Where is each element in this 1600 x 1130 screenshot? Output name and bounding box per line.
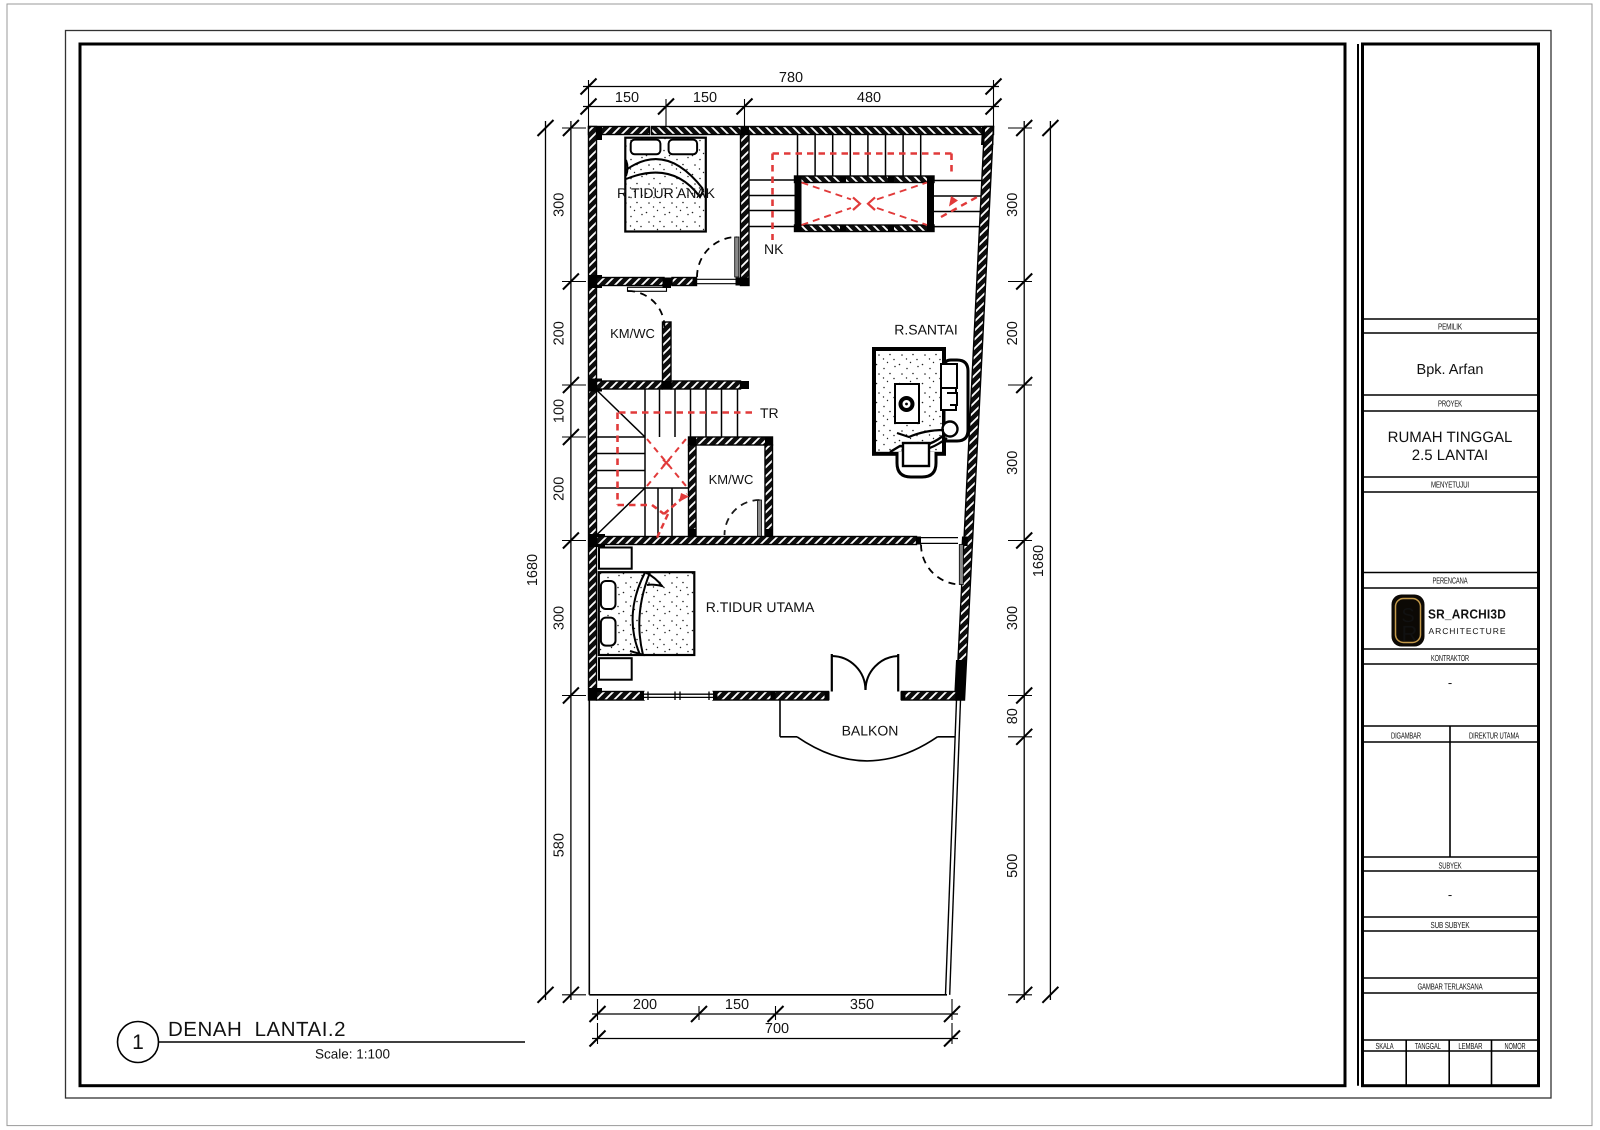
svg-text:350: 350 — [850, 997, 874, 1013]
svg-text:TR: TR — [760, 405, 779, 421]
svg-text:SUB SUBYEK: SUB SUBYEK — [1431, 920, 1470, 930]
svg-text:300: 300 — [1005, 451, 1021, 475]
svg-text:100: 100 — [552, 399, 568, 423]
svg-text:2.5 LANTAI: 2.5 LANTAI — [1412, 447, 1488, 464]
svg-text:580: 580 — [552, 833, 568, 857]
svg-text:KM/WC: KM/WC — [610, 326, 655, 341]
svg-text:300: 300 — [1005, 193, 1021, 217]
svg-text:R: R — [1402, 621, 1418, 646]
svg-text:1680: 1680 — [1031, 545, 1047, 577]
svg-text:LEMBAR: LEMBAR — [1458, 1041, 1482, 1051]
svg-text:PROYEK: PROYEK — [1438, 399, 1462, 409]
svg-text:ARCHITECTURE: ARCHITECTURE — [1429, 626, 1508, 636]
svg-text:PEMILIK: PEMILIK — [1438, 322, 1462, 332]
svg-text:1680: 1680 — [525, 554, 541, 586]
svg-text:TANGGAL: TANGGAL — [1415, 1041, 1441, 1051]
svg-text:GAMBAR TERLAKSANA: GAMBAR TERLAKSANA — [1418, 982, 1483, 992]
svg-text:150: 150 — [615, 90, 639, 106]
svg-text:300: 300 — [552, 606, 568, 630]
svg-text:200: 200 — [552, 477, 568, 501]
svg-text:NOMOR: NOMOR — [1505, 1041, 1526, 1051]
svg-text:PERENCANA: PERENCANA — [1433, 576, 1468, 586]
svg-text:RUMAH TINGGAL: RUMAH TINGGAL — [1388, 429, 1513, 446]
svg-text:300: 300 — [552, 193, 568, 217]
svg-text:SKALA: SKALA — [1376, 1041, 1394, 1051]
svg-text:150: 150 — [725, 997, 749, 1013]
svg-text:150: 150 — [693, 90, 717, 106]
svg-text:KONTRAKTOR: KONTRAKTOR — [1431, 653, 1469, 663]
svg-text:300: 300 — [1005, 606, 1021, 630]
svg-text:1: 1 — [132, 1031, 144, 1054]
svg-text:Bpk. Arfan: Bpk. Arfan — [1417, 362, 1484, 378]
svg-text:R.TIDUR ANAK: R.TIDUR ANAK — [617, 185, 716, 201]
svg-text:DIREKTUR UTAMA: DIREKTUR UTAMA — [1469, 731, 1519, 741]
svg-text:MENYETUJUI: MENYETUJUI — [1431, 480, 1469, 490]
svg-text:200: 200 — [1005, 321, 1021, 345]
svg-text:DENAH LANTAI.2: DENAH LANTAI.2 — [168, 1018, 346, 1041]
svg-text:500: 500 — [1005, 854, 1021, 878]
svg-text:200: 200 — [633, 997, 657, 1013]
svg-text:NK: NK — [764, 241, 784, 257]
svg-text:-: - — [1448, 887, 1452, 902]
svg-text:KM/WC: KM/WC — [709, 472, 754, 487]
svg-text:BALKON: BALKON — [842, 723, 899, 739]
svg-text:R.TIDUR UTAMA: R.TIDUR UTAMA — [706, 599, 815, 615]
svg-text:80: 80 — [1005, 708, 1021, 724]
svg-text:R.SANTAI: R.SANTAI — [894, 322, 958, 338]
svg-text:200: 200 — [552, 321, 568, 345]
svg-text:Scale: 1:100: Scale: 1:100 — [315, 1047, 390, 1062]
svg-text:-: - — [1448, 675, 1452, 690]
svg-text:SUBYEK: SUBYEK — [1439, 861, 1462, 871]
svg-text:780: 780 — [779, 70, 803, 86]
svg-text:SR_ARCHI3D: SR_ARCHI3D — [1428, 607, 1506, 622]
svg-text:700: 700 — [765, 1021, 789, 1037]
svg-text:480: 480 — [857, 90, 881, 106]
svg-text:DIGAMBAR: DIGAMBAR — [1391, 731, 1421, 741]
